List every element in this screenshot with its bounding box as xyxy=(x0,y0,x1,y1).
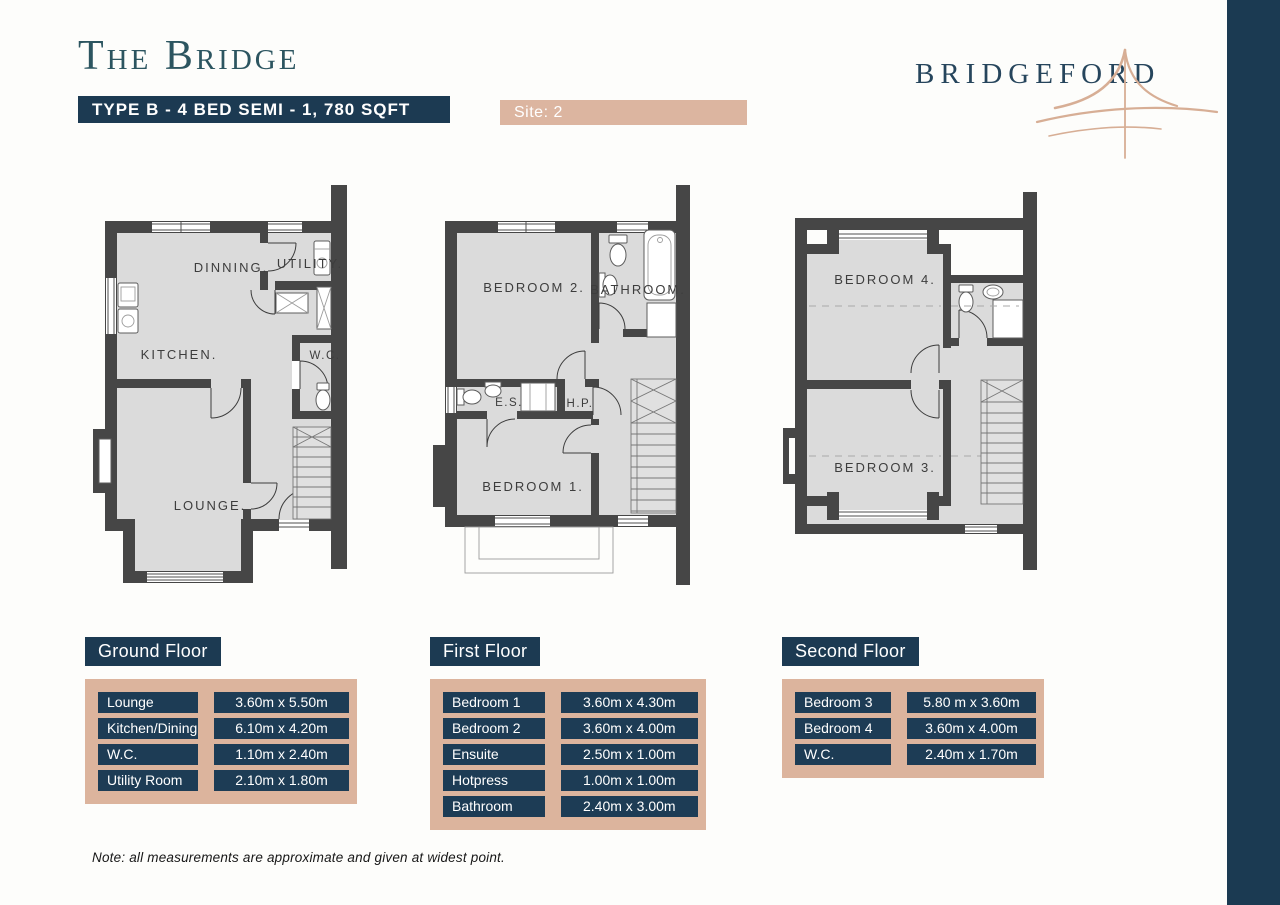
room-label-wc: W.C. xyxy=(310,350,341,362)
table-row: Lounge 3.60m x 5.50m xyxy=(98,692,349,713)
table-header: Ground Floor xyxy=(85,637,221,666)
room-name: W.C. xyxy=(795,744,891,765)
second-floor-plan: BEDROOM 4. BEDROOM 3. xyxy=(783,188,1048,573)
room-size: 3.60m x 5.50m xyxy=(214,692,349,713)
room-size: 6.10m x 4.20m xyxy=(214,718,349,739)
type-banner: TYPE B - 4 BED SEMI - 1, 780 SQFT xyxy=(78,96,450,123)
ensuite-toilet-icon xyxy=(457,389,481,405)
type-banner-label: TYPE B - 4 BED SEMI - 1, 780 SQFT xyxy=(92,100,410,119)
table-row: Bedroom 4 3.60m x 4.00m xyxy=(795,718,1036,739)
room-name: Hotpress xyxy=(443,770,545,791)
second-floor-table: Second Floor Bedroom 3 5.80 m x 3.60m Be… xyxy=(782,637,1044,778)
room-name: Bedroom 4 xyxy=(795,718,891,739)
room-size: 2.50m x 1.00m xyxy=(561,744,698,765)
room-size: 2.40m x 1.70m xyxy=(907,744,1036,765)
room-label-bedroom4: BEDROOM 4. xyxy=(834,272,936,287)
bridge-swoosh-icon xyxy=(1033,40,1223,160)
party-wall xyxy=(1023,192,1037,570)
room-name: Utility Room xyxy=(98,770,198,791)
table-row: Bedroom 3 5.80 m x 3.60m xyxy=(795,692,1036,713)
room-size: 3.60m x 4.30m xyxy=(561,692,698,713)
table-header: First Floor xyxy=(430,637,540,666)
table-header: Second Floor xyxy=(782,637,919,666)
sink-icon xyxy=(983,285,1003,299)
table-row: Bedroom 2 3.60m x 4.00m xyxy=(443,718,698,739)
window xyxy=(965,525,997,533)
room-label-lounge: LOUNGE. xyxy=(174,498,247,513)
ground-floor-plan: DINNING. UTILITY. KITCHEN. W.C. LOUNGE. xyxy=(93,183,368,593)
room-size: 2.10m x 1.80m xyxy=(214,770,349,791)
site-banner: Site: 2 xyxy=(500,100,747,125)
room-size: 1.10m x 2.40m xyxy=(214,744,349,765)
room-name: Bedroom 3 xyxy=(795,692,891,713)
room-label-utility: UTILITY. xyxy=(277,256,343,271)
ground-floor-table: Ground Floor Lounge 3.60m x 5.50m Kitche… xyxy=(85,637,357,804)
first-floor-table: First Floor Bedroom 1 3.60m x 4.30m Bedr… xyxy=(430,637,706,830)
room-label-bedroom1: BEDROOM 1. xyxy=(482,479,584,494)
room-name: Ensuite xyxy=(443,744,545,765)
page-title: The Bridge xyxy=(78,32,299,80)
room-label-bedroom3: BEDROOM 3. xyxy=(834,460,936,475)
stairs xyxy=(631,379,676,513)
room-label-bedroom2: BEDROOM 2. xyxy=(483,280,585,295)
page-edge-strip xyxy=(1227,0,1280,905)
ensuite-window xyxy=(446,385,456,413)
table-row: Bedroom 1 3.60m x 4.30m xyxy=(443,692,698,713)
room-label-hotpress: H.P. xyxy=(567,398,594,410)
brand-logo: BRIDGEFORD xyxy=(905,40,1225,160)
room-label-ensuite: E.S. xyxy=(495,397,523,409)
room-name: Kitchen/Dining xyxy=(98,718,198,739)
party-wall xyxy=(331,185,347,569)
cupboard xyxy=(647,303,676,337)
room-size: 2.40m x 3.00m xyxy=(561,796,698,817)
room-name: Bedroom 2 xyxy=(443,718,545,739)
toilet-icon xyxy=(959,285,973,312)
room-size: 3.60m x 4.00m xyxy=(907,718,1036,739)
ensuite-sink-icon xyxy=(485,382,501,397)
room-label-kitchen: KITCHEN. xyxy=(141,347,218,362)
table-panel: Bedroom 3 5.80 m x 3.60m Bedroom 4 3.60m… xyxy=(782,679,1044,778)
room-size: 1.00m x 1.00m xyxy=(561,770,698,791)
left-bay xyxy=(93,429,111,493)
first-floor-plan: BEDROOM 2. BATHROOM. E.S. H.P. BEDROOM 1… xyxy=(433,183,708,593)
table-row: Kitchen/Dining 6.10m x 4.20m xyxy=(98,718,349,739)
table-panel: Lounge 3.60m x 5.50m Kitchen/Dining 6.10… xyxy=(85,679,357,804)
table-row: W.C. 2.40m x 1.70m xyxy=(795,744,1036,765)
toilet-icon xyxy=(609,235,627,266)
kitchen-window xyxy=(106,278,116,334)
stairs xyxy=(981,380,1023,504)
room-name: W.C. xyxy=(98,744,198,765)
room-label-dining: DINNING. xyxy=(194,260,269,275)
table-row: Hotpress 1.00m x 1.00m xyxy=(443,770,698,791)
table-row: Ensuite 2.50m x 1.00m xyxy=(443,744,698,765)
site-banner-label: Site: 2 xyxy=(514,104,563,121)
room-name: Bathroom xyxy=(443,796,545,817)
measurements-note: Note: all measurements are approximate a… xyxy=(92,850,505,865)
wardrobe xyxy=(521,383,555,411)
table-row: Utility Room 2.10m x 1.80m xyxy=(98,770,349,791)
room-label-bathroom: BATHROOM. xyxy=(590,282,686,297)
table-row: Bathroom 2.40m x 3.00m xyxy=(443,796,698,817)
room-name: Lounge xyxy=(98,692,198,713)
party-wall xyxy=(676,185,690,585)
room-size: 3.60m x 4.00m xyxy=(561,718,698,739)
table-panel: Bedroom 1 3.60m x 4.30m Bedroom 2 3.60m … xyxy=(430,679,706,830)
left-bump xyxy=(783,428,795,484)
table-row: W.C. 1.10m x 2.40m xyxy=(98,744,349,765)
porch-outline xyxy=(465,527,613,573)
room-name: Bedroom 1 xyxy=(443,692,545,713)
toilet-icon xyxy=(316,383,330,410)
room-size: 5.80 m x 3.60m xyxy=(907,692,1036,713)
stairs xyxy=(293,427,331,519)
